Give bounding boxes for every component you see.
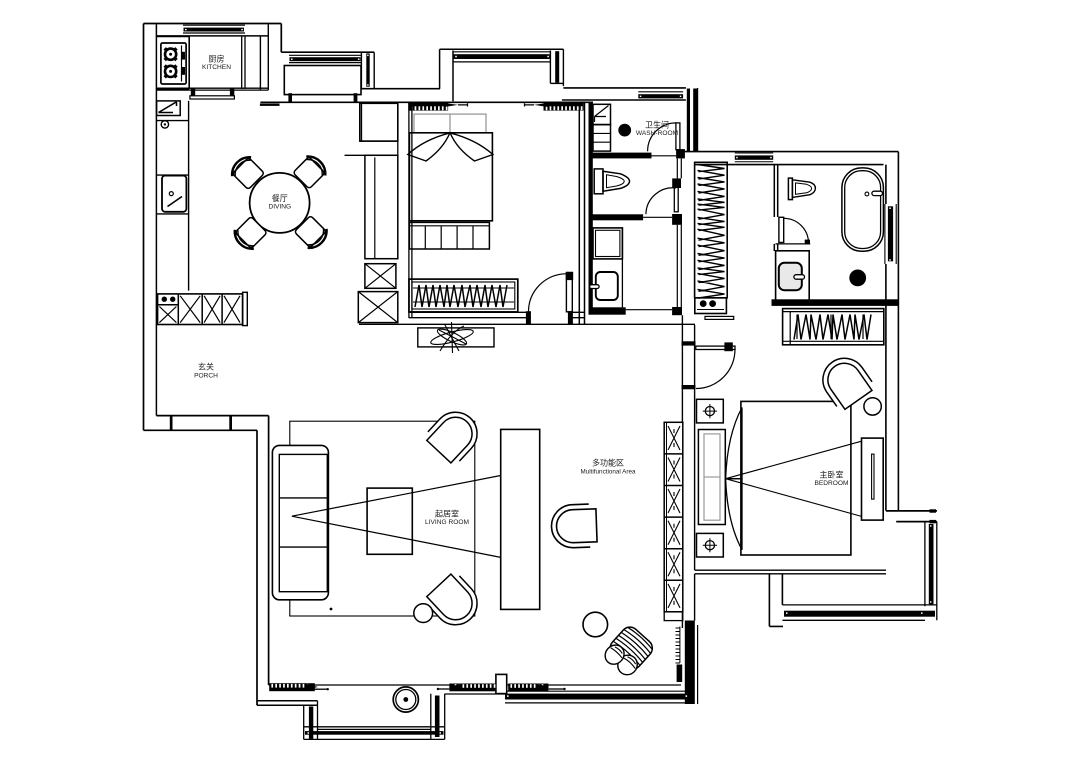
svg-text:Multifunctional Area: Multifunctional Area	[581, 468, 636, 475]
svg-text:LIVING ROOM: LIVING ROOM	[425, 519, 469, 526]
svg-text:主卧室: 主卧室	[820, 469, 844, 479]
svg-text:BEDROOM: BEDROOM	[814, 480, 848, 487]
svg-text:WASH-ROOM: WASH-ROOM	[636, 130, 678, 137]
svg-text:厨房: 厨房	[209, 53, 225, 63]
svg-text:卫生间: 卫生间	[645, 120, 669, 130]
svg-text:玄关: 玄关	[198, 362, 214, 372]
svg-text:KITCHEN: KITCHEN	[202, 64, 231, 71]
svg-text:DIVING: DIVING	[268, 204, 291, 211]
svg-text:餐厅: 餐厅	[272, 194, 288, 203]
svg-text:起居室: 起居室	[435, 508, 459, 518]
svg-text:PORCH: PORCH	[194, 372, 218, 379]
svg-text:多功能区: 多功能区	[592, 458, 624, 468]
